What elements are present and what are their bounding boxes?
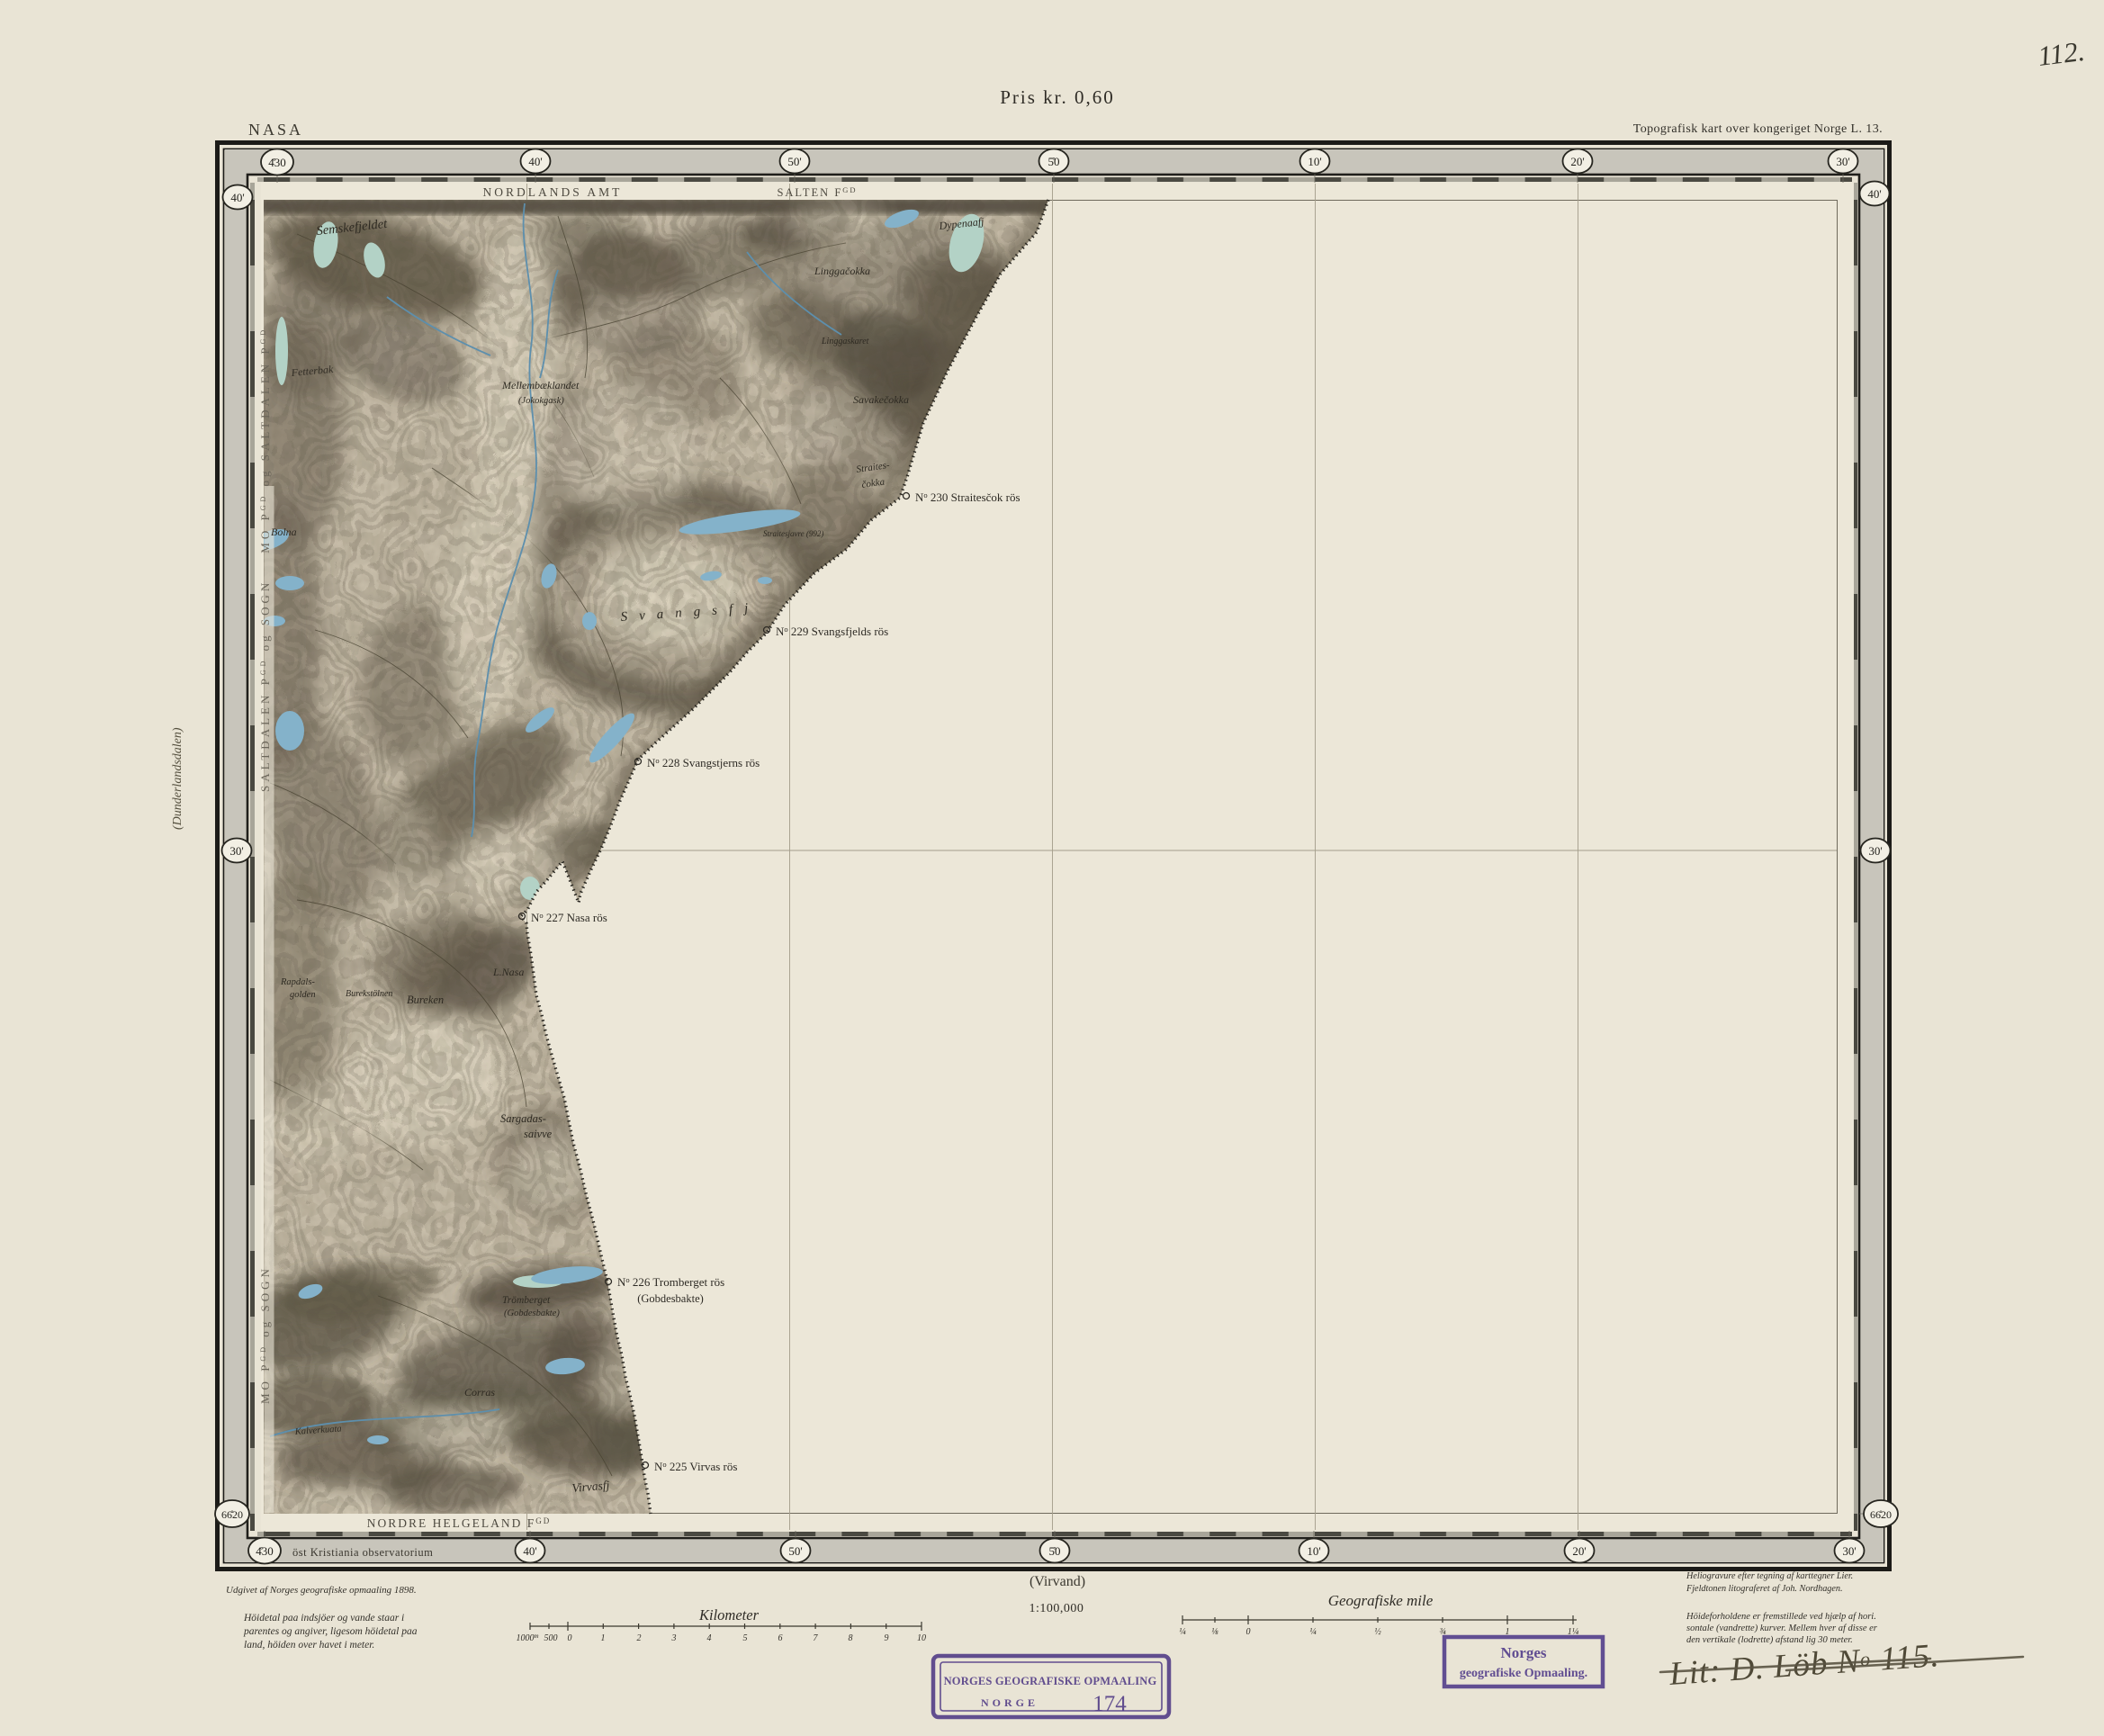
svg-text:golden: golden (290, 990, 316, 1000)
svg-text:No 225 Virvas rös: No 225 Virvas rös (654, 1460, 737, 1473)
svg-text:5̊0: 5̊0 (1048, 155, 1060, 168)
svg-text:4̊30: 4̊30 (256, 1544, 274, 1558)
svg-text:Sargadas-: Sargadas- (500, 1112, 546, 1125)
svg-text:No 228 Svangstjerns rös: No 228 Svangstjerns rös (647, 756, 760, 769)
svg-text:Kilometer: Kilometer (698, 1606, 760, 1624)
svg-text:30': 30' (229, 844, 243, 858)
svg-text:10': 10' (1308, 155, 1321, 168)
svg-text:66̊20: 66̊20 (1870, 1508, 1892, 1521)
svg-text:saivve: saivve (524, 1128, 553, 1140)
svg-text:(Gobdesbakte): (Gobdesbakte) (637, 1292, 704, 1305)
svg-text:¼: ¼ (1179, 1627, 1186, 1637)
svg-text:Geografiske mile: Geografiske mile (1328, 1592, 1434, 1609)
svg-text:50': 50' (787, 155, 801, 168)
svg-text:Udgivet af Norges geografiske: Udgivet af Norges geografiske opmaaling … (226, 1585, 417, 1596)
svg-text:NORDLANDS AMT: NORDLANDS AMT (483, 185, 623, 199)
svg-text:20': 20' (1570, 155, 1584, 168)
svg-text:land, höiden over havet i mete: land, höiden over havet i meter. (244, 1640, 374, 1651)
svg-text:Höidetal paa indsjöer og vande: Höidetal paa indsjöer og vande staar i (243, 1613, 404, 1624)
svg-text:1: 1 (601, 1633, 606, 1643)
svg-text:174: 174 (1092, 1692, 1127, 1716)
svg-text:No 226 Tromberget rös: No 226 Tromberget rös (617, 1275, 724, 1289)
svg-text:40': 40' (523, 1544, 536, 1558)
svg-text:30': 30' (1842, 1544, 1856, 1558)
svg-text:¼: ¼ (1309, 1627, 1317, 1637)
svg-text:(Gobdesbakte): (Gobdesbakte) (504, 1309, 560, 1318)
svg-text:30': 30' (1868, 844, 1882, 858)
svg-text:Linggačokka: Linggačokka (814, 265, 870, 277)
svg-text:6: 6 (778, 1633, 783, 1643)
svg-text:Fjeldtonen litograferet af Joh: Fjeldtonen litograferet af Joh. Nordhage… (1686, 1584, 1843, 1594)
svg-text:Topografisk kart over kongerig: Topografisk kart over kongeriget Norge L… (1633, 122, 1883, 136)
svg-text:Höideforholdene er fremstilled: Höideforholdene er fremstillede ved hjæl… (1686, 1612, 1876, 1622)
svg-text:66̊20: 66̊20 (221, 1508, 243, 1521)
svg-text:NORGE: NORGE (981, 1696, 1039, 1709)
svg-text:30': 30' (1836, 155, 1849, 168)
svg-text:50': 50' (788, 1544, 802, 1558)
svg-text:NORGES GEOGRAFISKE OPMAALING: NORGES GEOGRAFISKE OPMAALING (944, 1675, 1157, 1687)
svg-text:NORDRE HELGELAND FGD: NORDRE HELGELAND FGD (367, 1516, 552, 1530)
svg-text:Trömberget: Trömberget (502, 1295, 551, 1306)
svg-text:öst Kristiania observatorium: öst Kristiania observatorium (292, 1546, 433, 1559)
svg-text:8: 8 (849, 1633, 853, 1643)
svg-text:5̊0: 5̊0 (1049, 1544, 1061, 1558)
svg-text:MO PGD og SOGN: MO PGD og SOGN (258, 1265, 272, 1404)
svg-text:Savakečokka: Savakečokka (853, 393, 909, 406)
svg-text:112.: 112. (2037, 35, 2087, 72)
svg-text:No 227 Nasa rös: No 227 Nasa rös (531, 911, 607, 924)
svg-text:(Virvand): (Virvand) (1030, 1574, 1085, 1589)
svg-text:20': 20' (1572, 1544, 1586, 1558)
svg-text:½: ½ (1374, 1627, 1381, 1637)
svg-text:Norges: Norges (1501, 1644, 1547, 1661)
svg-text:(Dunderlandsdalen): (Dunderlandsdalen) (171, 727, 184, 830)
svg-text:⅛: ⅛ (1211, 1627, 1218, 1637)
svg-text:Burekstölnen: Burekstölnen (346, 989, 392, 999)
svg-text:0: 0 (568, 1633, 572, 1643)
svg-text:2: 2 (637, 1633, 642, 1643)
svg-text:sontale (vandrette) kurver. Me: sontale (vandrette) kurver. Mellem hver … (1686, 1624, 1878, 1633)
svg-text:40': 40' (230, 191, 244, 204)
svg-text:No 229 Svangsfjelds rös: No 229 Svangsfjelds rös (776, 625, 888, 638)
svg-text:1:100,000: 1:100,000 (1030, 1602, 1084, 1615)
svg-text:4: 4 (707, 1633, 712, 1643)
svg-text:10: 10 (917, 1633, 926, 1643)
svg-text:NASA: NASA (248, 121, 303, 139)
svg-text:0: 0 (1246, 1627, 1251, 1637)
svg-text:Corras: Corras (464, 1386, 495, 1399)
svg-text:3: 3 (671, 1633, 677, 1643)
svg-text:L.Nasa: L.Nasa (492, 966, 524, 978)
svg-text:SALTDALEN PGD og SOGN MO: SALTDALEN PGD og SOGN MO PGD og SALTDALE… (258, 327, 272, 792)
svg-text:Rapdals-: Rapdals- (280, 977, 315, 987)
svg-text:Bolna: Bolna (271, 526, 297, 538)
svg-text:10': 10' (1307, 1544, 1320, 1558)
svg-text:40': 40' (528, 155, 542, 168)
svg-text:den vertikale (lodrette) afsta: den vertikale (lodrette) afstand lig 30 … (1686, 1635, 1853, 1645)
svg-text:Pris kr. 0,60: Pris kr. 0,60 (1000, 86, 1115, 108)
svg-text:9: 9 (885, 1633, 889, 1643)
svg-text:4̊30: 4̊30 (268, 156, 286, 169)
svg-text:500: 500 (544, 1633, 558, 1643)
svg-text:(Jokokgask): (Jokokgask) (518, 396, 564, 406)
svg-text:Mellembæklandet: Mellembæklandet (501, 379, 580, 391)
svg-text:No 230 Straitesčok rös: No 230 Straitesčok rös (915, 490, 1021, 504)
svg-text:Straitesjavre (992): Straitesjavre (992) (763, 529, 823, 538)
svg-text:geografiske Opmaaling.: geografiske Opmaaling. (1460, 1667, 1587, 1680)
svg-text:Bureken: Bureken (407, 994, 444, 1006)
svg-text:Heliogravure efter tegning af: Heliogravure efter tegning af karttegner… (1686, 1571, 1853, 1581)
svg-text:40': 40' (1867, 187, 1881, 201)
svg-text:parentes og angiver, ligesom h: parentes og angiver, ligesom höidetal pa… (243, 1626, 418, 1637)
svg-text:Linggaskaret: Linggaskaret (821, 337, 869, 346)
svg-text:5: 5 (743, 1633, 748, 1643)
